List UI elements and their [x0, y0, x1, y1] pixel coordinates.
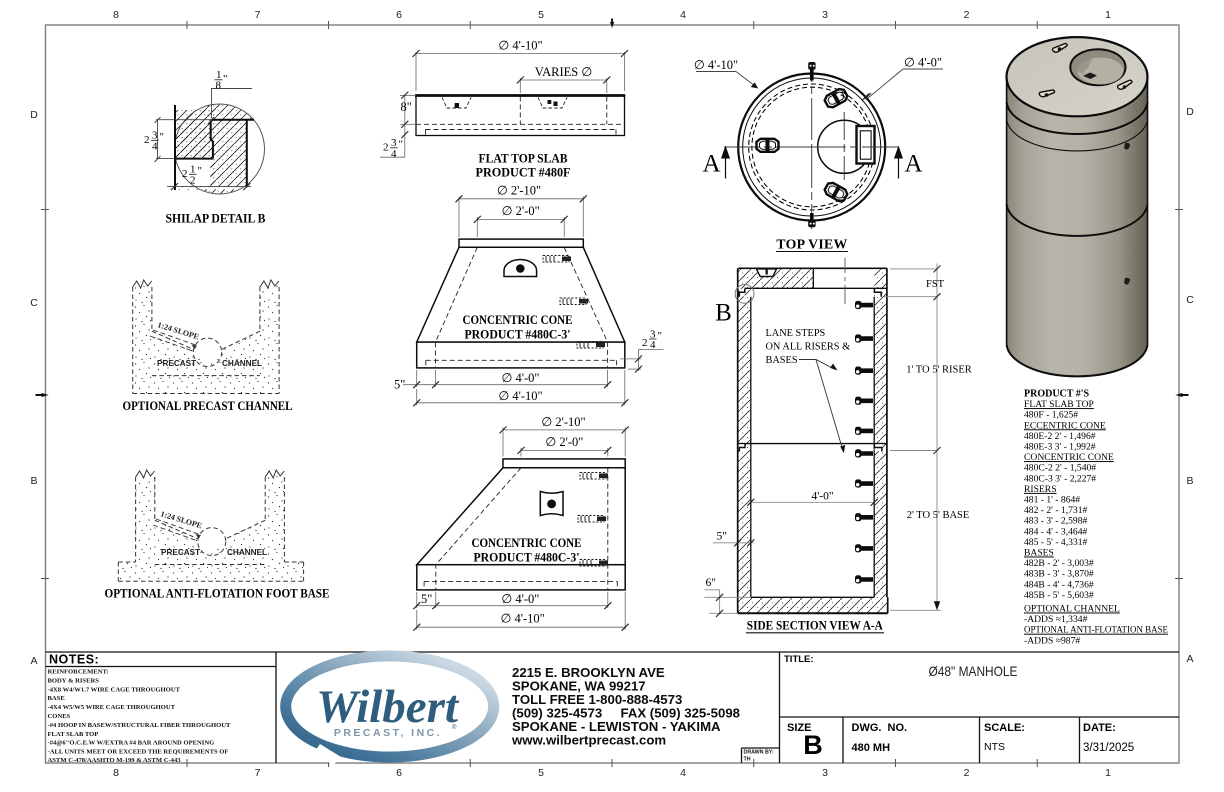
svg-text:8": 8": [401, 100, 412, 114]
svg-text:BASE: BASE: [48, 695, 66, 702]
svg-text:PRECAST: PRECAST: [161, 548, 200, 557]
svg-text:www.wilbertprecast.com: www.wilbertprecast.com: [511, 733, 666, 748]
svg-text:481 - 1' - 864#: 481 - 1' - 864#: [1024, 495, 1080, 506]
svg-text:PRODUCT #480C-3': PRODUCT #480C-3': [465, 327, 571, 342]
svg-text:D: D: [30, 109, 38, 121]
svg-text:OPTIONAL ANTI-FLOTATION FOOT B: OPTIONAL ANTI-FLOTATION FOOT BASE: [105, 587, 330, 601]
svg-text:4: 4: [650, 339, 656, 351]
svg-text:PRODUCT #480F: PRODUCT #480F: [476, 166, 571, 180]
svg-text:LANE STEPS: LANE STEPS: [766, 328, 826, 339]
svg-text:8: 8: [113, 767, 119, 779]
svg-text:B: B: [803, 730, 823, 760]
svg-text:OPTIONAL ANTI-FLOTATION BASE: OPTIONAL ANTI-FLOTATION BASE: [1024, 625, 1168, 636]
svg-text:-4X4 W5/W5 WIRE CAGE THROUGHOU: -4X4 W5/W5 WIRE CAGE THROUGHOUT: [48, 704, 176, 711]
svg-text:4: 4: [680, 9, 686, 21]
svg-text:A: A: [1186, 653, 1193, 665]
svg-text:4: 4: [680, 767, 686, 779]
svg-text:PRODUCT #480C-3': PRODUCT #480C-3': [474, 550, 580, 565]
svg-text:485 - 5' - 4,331#: 485 - 5' - 4,331#: [1024, 537, 1087, 548]
svg-text:TH: TH: [744, 757, 751, 763]
svg-text:PRECAST: PRECAST: [157, 359, 196, 368]
svg-text:CONCENTRIC CONE: CONCENTRIC CONE: [472, 535, 582, 550]
svg-text:2: 2: [383, 142, 389, 154]
svg-text:480C-2 2' - 1,540#: 480C-2 2' - 1,540#: [1024, 463, 1096, 474]
svg-text:ECCENTRIC CONE: ECCENTRIC CONE: [1024, 420, 1106, 431]
svg-text:FST: FST: [926, 279, 945, 290]
svg-text:SCALE:: SCALE:: [984, 722, 1025, 734]
svg-text:480F - 1,625#: 480F - 1,625#: [1024, 410, 1078, 421]
svg-text:SHILAP DETAIL B: SHILAP DETAIL B: [166, 212, 266, 226]
svg-text:FLAT TOP SLAB: FLAT TOP SLAB: [479, 152, 568, 166]
svg-text:BODY & RISERS: BODY & RISERS: [48, 677, 100, 684]
svg-text:485B - 5' - 5,603#: 485B - 5' - 5,603#: [1024, 590, 1094, 601]
svg-text:∅ 4'-0": ∅ 4'-0": [904, 56, 942, 70]
svg-text:∅ 2'-0": ∅ 2'-0": [502, 204, 540, 218]
svg-text:2: 2: [642, 337, 648, 349]
svg-text:2: 2: [964, 767, 970, 779]
svg-text:": ": [658, 330, 663, 342]
svg-text:7: 7: [255, 9, 261, 21]
svg-text:∅ 4'-10": ∅ 4'-10": [694, 58, 738, 72]
svg-text:483B - 3' - 3,870#: 483B - 3' - 3,870#: [1024, 569, 1094, 580]
svg-text:RISERS: RISERS: [1024, 484, 1057, 495]
svg-text:483 - 3' - 2,598#: 483 - 3' - 2,598#: [1024, 516, 1087, 527]
svg-text:CONCENTRIC CONE: CONCENTRIC CONE: [1024, 452, 1114, 463]
svg-text:-ADDS ≈987#: -ADDS ≈987#: [1024, 635, 1080, 646]
svg-text:4: 4: [391, 148, 397, 160]
svg-text:-4X8 W4/W1.7 WIRE CAGE THROUGH: -4X8 W4/W1.7 WIRE CAGE THROUGHOUT: [48, 686, 181, 693]
svg-text:TOP VIEW: TOP VIEW: [776, 237, 847, 252]
svg-text:480E-3 3' - 1,992#: 480E-3 3' - 1,992#: [1024, 442, 1096, 453]
svg-text:C: C: [30, 297, 38, 309]
svg-text:2' TO 5' BASE: 2' TO 5' BASE: [907, 510, 970, 521]
svg-text:∅ 4'-10": ∅ 4'-10": [498, 39, 542, 53]
svg-text:482 - 2' - 1,731#: 482 - 2' - 1,731#: [1024, 505, 1087, 516]
svg-text:∅ 2'-0": ∅ 2'-0": [545, 435, 583, 449]
svg-text:": ": [399, 139, 404, 151]
svg-text:A: A: [30, 655, 37, 667]
svg-text:8: 8: [113, 9, 119, 21]
svg-text:OPTIONAL PRECAST CHANNEL: OPTIONAL PRECAST CHANNEL: [123, 399, 293, 413]
svg-text:DATE:: DATE:: [1083, 722, 1116, 734]
svg-text:OPTIONAL CHANNEL: OPTIONAL CHANNEL: [1024, 604, 1120, 615]
svg-text:": ": [223, 73, 228, 85]
svg-text:5: 5: [538, 767, 544, 779]
svg-text:2: 2: [144, 134, 150, 146]
svg-text:D: D: [1186, 106, 1194, 118]
svg-text:3: 3: [822, 767, 828, 779]
svg-text:5": 5": [717, 531, 727, 543]
svg-text:CHANNEL: CHANNEL: [227, 548, 267, 557]
svg-text:C: C: [1186, 294, 1194, 306]
svg-text:BASES: BASES: [766, 355, 798, 366]
svg-text:PRECAST, INC.: PRECAST, INC.: [334, 727, 442, 739]
svg-text:484 - 4' - 3,464#: 484 - 4' - 3,464#: [1024, 526, 1087, 537]
svg-text:3/31/2025: 3/31/2025: [1083, 742, 1134, 754]
svg-text:6: 6: [396, 9, 402, 21]
svg-text:": ": [198, 165, 203, 177]
svg-text:-ADDS ≈1,334#: -ADDS ≈1,334#: [1024, 614, 1088, 625]
svg-text:2: 2: [964, 9, 970, 21]
svg-text:5": 5": [421, 592, 432, 606]
svg-text:∅ 2'-10": ∅ 2'-10": [497, 184, 541, 198]
svg-text:B: B: [1186, 475, 1193, 487]
svg-text:CONES: CONES: [48, 713, 71, 720]
svg-text:CONCENTRIC CONE: CONCENTRIC CONE: [463, 312, 573, 327]
svg-text:PRODUCT #'S: PRODUCT #'S: [1024, 389, 1090, 400]
svg-text:SIDE SECTION VIEW A-A: SIDE SECTION VIEW A-A: [747, 619, 883, 633]
svg-text:A: A: [702, 151, 720, 178]
svg-text:ON ALL RISERS &: ON ALL RISERS &: [766, 342, 851, 353]
svg-text:482B - 2' - 3,003#: 482B - 2' - 3,003#: [1024, 558, 1094, 569]
svg-text:2: 2: [190, 175, 196, 187]
svg-text:REINFORCEMENT:: REINFORCEMENT:: [48, 669, 109, 676]
svg-text:∅ 4'-10": ∅ 4'-10": [498, 389, 542, 403]
svg-text:5: 5: [538, 9, 544, 21]
svg-text:480C-3 3' - 2,227#: 480C-3 3' - 2,227#: [1024, 473, 1096, 484]
svg-text:": ": [160, 131, 165, 143]
svg-text:4: 4: [152, 141, 158, 153]
svg-text:VARIES ∅: VARIES ∅: [535, 65, 593, 79]
svg-text:8: 8: [216, 80, 222, 92]
svg-text:6: 6: [396, 767, 402, 779]
svg-text:∅ 4'-0": ∅ 4'-0": [501, 371, 539, 385]
svg-text:Wilbert: Wilbert: [316, 681, 460, 733]
svg-text:484B - 4' - 4,736#: 484B - 4' - 4,736#: [1024, 579, 1094, 590]
svg-text:®: ®: [452, 724, 457, 731]
svg-text:3: 3: [822, 9, 828, 21]
svg-text:5": 5": [394, 378, 405, 392]
svg-text:480E-2 2' - 1,496#: 480E-2 2' - 1,496#: [1024, 431, 1096, 442]
svg-text:4'-0": 4'-0": [811, 491, 833, 503]
svg-text:-ALL UNITS MEET OR EXCEED THE: -ALL UNITS MEET OR EXCEED THE REQUIREMEN…: [48, 749, 229, 756]
svg-text:1: 1: [1105, 767, 1111, 779]
svg-text:Ø48" MANHOLE: Ø48" MANHOLE: [929, 663, 1018, 679]
svg-text:BASES: BASES: [1024, 548, 1054, 559]
svg-text:B: B: [30, 475, 37, 487]
svg-text:7: 7: [255, 767, 261, 779]
svg-text:ASTM C-478/AASHTO M-199 & ASTM: ASTM C-478/AASHTO M-199 & ASTM C-443: [48, 757, 182, 764]
svg-text:1: 1: [1105, 9, 1111, 21]
svg-text:2: 2: [182, 168, 188, 180]
svg-text:1' TO 5' RISER: 1' TO 5' RISER: [906, 365, 972, 376]
svg-text:6": 6": [706, 577, 716, 589]
svg-text:NOTES:: NOTES:: [49, 653, 99, 667]
svg-text:CHANNEL: CHANNEL: [222, 359, 262, 368]
svg-text:FLAT SLAB TOP: FLAT SLAB TOP: [48, 731, 99, 738]
svg-text:480 MH: 480 MH: [852, 742, 891, 754]
svg-text:DRAWN BY:: DRAWN BY:: [744, 750, 774, 756]
svg-text:A: A: [904, 151, 922, 178]
svg-text:NTS: NTS: [984, 741, 1005, 753]
svg-text:∅ 4'-10": ∅ 4'-10": [500, 611, 544, 625]
svg-text:∅ 2'-10": ∅ 2'-10": [541, 415, 585, 429]
svg-text:-#4 HOOP IN BASEW/STRUCTURAL F: -#4 HOOP IN BASEW/STRUCTURAL FIBER THROU…: [48, 722, 231, 729]
svg-text:∅ 4'-0": ∅ 4'-0": [501, 592, 539, 606]
svg-text:DWG. NO.: DWG. NO.: [852, 722, 908, 734]
svg-text:-#4@6"O.C.E.W W/EXTRA #4 BAR A: -#4@6"O.C.E.W W/EXTRA #4 BAR AROUND OPEN…: [48, 740, 215, 747]
svg-text:B: B: [715, 299, 732, 326]
svg-text:FLAT SLAB TOP: FLAT SLAB TOP: [1024, 399, 1094, 410]
svg-text:TITLE:: TITLE:: [784, 654, 814, 665]
